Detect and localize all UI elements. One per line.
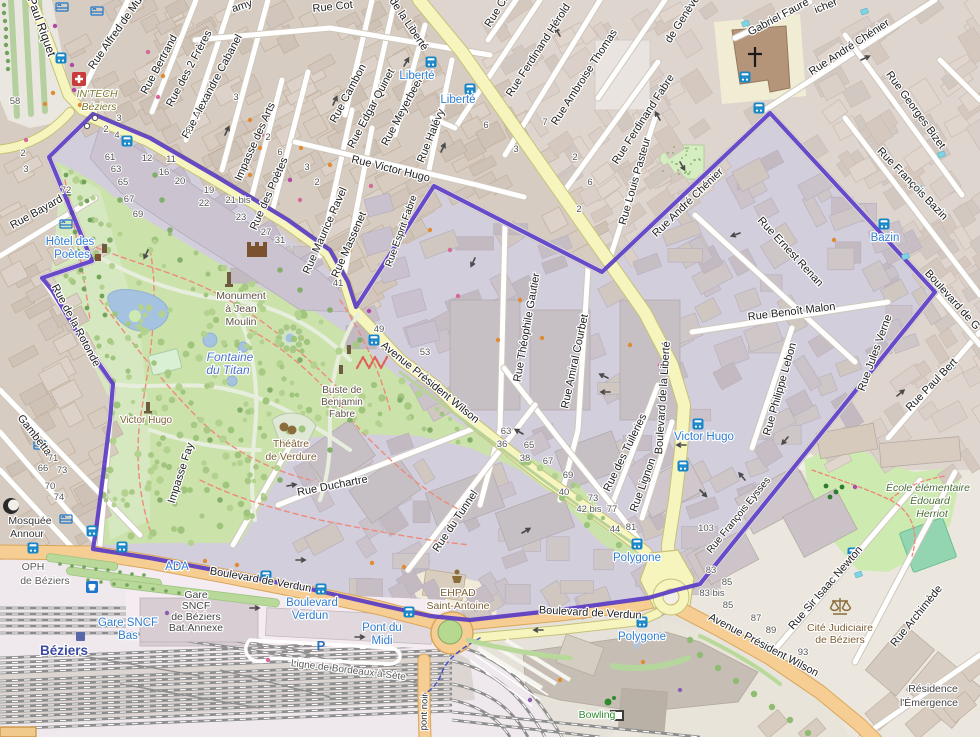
svg-text:EHPAD: EHPAD	[440, 587, 476, 599]
svg-text:2: 2	[572, 152, 577, 163]
svg-text:Victor Hugo: Victor Hugo	[674, 431, 734, 443]
svg-text:3: 3	[304, 162, 309, 173]
svg-text:Cité Judiciaire: Cité Judiciaire	[807, 622, 873, 634]
svg-text:de Verdure: de Verdure	[265, 451, 317, 463]
svg-text:Édouard: Édouard	[910, 494, 951, 507]
svg-text:Bazin: Bazin	[871, 232, 900, 244]
svg-text:Benjamin: Benjamin	[321, 397, 363, 408]
svg-text:4: 4	[114, 130, 119, 141]
svg-text:Résidence: Résidence	[908, 683, 958, 695]
svg-text:81: 81	[626, 522, 637, 533]
svg-text:l'Émergence: l'Émergence	[900, 696, 958, 709]
svg-text:Polygone: Polygone	[618, 631, 666, 643]
svg-text:73: 73	[588, 493, 599, 504]
svg-text:Liberté: Liberté	[440, 94, 475, 106]
svg-text:23: 23	[236, 212, 247, 223]
svg-text:Polygone: Polygone	[613, 552, 661, 564]
svg-text:Fabre: Fabre	[329, 409, 356, 420]
svg-text:Herriot: Herriot	[916, 508, 949, 520]
svg-text:Midi: Midi	[371, 635, 392, 647]
svg-text:36: 36	[497, 439, 508, 450]
svg-text:6: 6	[587, 177, 592, 188]
svg-text:Mosquée: Mosquée	[8, 515, 51, 527]
svg-text:Bat.Annexe: Bat.Annexe	[169, 622, 223, 634]
svg-text:22: 22	[199, 198, 210, 209]
svg-text:19: 19	[204, 185, 215, 196]
svg-text:63: 63	[501, 426, 512, 437]
svg-text:67: 67	[543, 456, 554, 467]
svg-text:Béziers: Béziers	[81, 101, 117, 113]
svg-text:89: 89	[766, 625, 777, 636]
svg-text:Verdun: Verdun	[292, 610, 328, 622]
svg-text:71: 71	[48, 453, 59, 464]
svg-text:du Titan: du Titan	[206, 363, 250, 377]
svg-text:65: 65	[118, 177, 129, 188]
svg-text:à Jean: à Jean	[225, 303, 257, 315]
svg-text:Théâtre: Théâtre	[273, 438, 309, 450]
svg-text:Poètes: Poètes	[54, 249, 90, 261]
svg-text:2: 2	[265, 132, 270, 143]
svg-text:77: 77	[607, 504, 618, 515]
svg-text:72: 72	[61, 185, 72, 196]
svg-text:6: 6	[185, 125, 190, 136]
svg-text:6: 6	[483, 120, 488, 131]
svg-text:Victor Hugo: Victor Hugo	[120, 415, 173, 426]
svg-text:Bas: Bas	[118, 630, 138, 642]
svg-text:69: 69	[133, 209, 144, 220]
svg-text:IN'TECH: IN'TECH	[76, 88, 118, 100]
svg-text:73: 73	[57, 465, 68, 476]
svg-text:2: 2	[20, 148, 25, 159]
svg-text:7: 7	[542, 117, 547, 128]
svg-text:42 bis: 42 bis	[576, 504, 602, 515]
svg-text:83: 83	[706, 565, 717, 576]
svg-text:Fontaine: Fontaine	[207, 350, 254, 364]
svg-text:63: 63	[111, 164, 122, 175]
svg-text:85: 85	[723, 600, 734, 611]
svg-text:12: 12	[142, 153, 153, 164]
svg-text:74: 74	[54, 492, 65, 503]
svg-text:49: 49	[374, 324, 385, 335]
svg-text:pont noir: pont noir	[418, 693, 430, 730]
svg-text:70: 70	[45, 481, 56, 492]
svg-text:Boulevard: Boulevard	[286, 597, 338, 609]
svg-text:66: 66	[38, 463, 49, 474]
svg-text:P: P	[317, 638, 326, 653]
svg-text:6: 6	[277, 147, 282, 158]
svg-text:École élémentaire: École élémentaire	[886, 481, 970, 494]
svg-text:103: 103	[698, 523, 714, 534]
svg-text:de Béziers: de Béziers	[20, 575, 70, 587]
svg-text:Moulin: Moulin	[226, 316, 257, 328]
svg-text:67: 67	[124, 194, 135, 205]
svg-text:Gare SNCF: Gare SNCF	[98, 617, 158, 629]
svg-text:Bowling: Bowling	[579, 709, 616, 721]
svg-text:27: 27	[261, 227, 272, 238]
svg-text:61: 61	[105, 152, 116, 163]
svg-text:Hôtel des: Hôtel des	[46, 236, 95, 248]
svg-text:de Béziers: de Béziers	[815, 634, 865, 646]
svg-text:21 bis: 21 bis	[225, 195, 251, 206]
svg-text:2: 2	[576, 204, 581, 215]
svg-text:Annour: Annour	[10, 528, 44, 540]
svg-text:2: 2	[314, 177, 319, 188]
svg-text:ADA: ADA	[165, 561, 189, 573]
svg-text:Béziers: Béziers	[40, 643, 88, 658]
svg-text:40: 40	[559, 487, 570, 498]
svg-text:69: 69	[563, 470, 574, 481]
svg-text:Buste de: Buste de	[322, 385, 362, 396]
svg-text:Liberté: Liberté	[399, 70, 434, 82]
svg-text:3: 3	[513, 144, 518, 155]
svg-text:20: 20	[175, 176, 186, 187]
svg-text:OPH: OPH	[22, 561, 45, 573]
svg-text:7: 7	[195, 111, 200, 122]
svg-text:85: 85	[722, 577, 733, 588]
svg-text:83 bis: 83 bis	[699, 588, 725, 599]
svg-text:3: 3	[116, 113, 121, 124]
svg-text:16: 16	[159, 167, 170, 178]
svg-text:2: 2	[103, 124, 108, 135]
svg-text:31: 31	[275, 235, 286, 246]
svg-text:Monument: Monument	[216, 290, 266, 302]
svg-text:Pont du: Pont du	[362, 622, 402, 634]
svg-text:93: 93	[798, 647, 809, 658]
svg-text:44: 44	[610, 524, 621, 535]
svg-text:3: 3	[233, 92, 238, 103]
svg-text:3: 3	[23, 164, 28, 175]
svg-text:41: 41	[333, 278, 344, 289]
svg-text:58: 58	[10, 96, 21, 107]
svg-text:11: 11	[166, 154, 176, 165]
svg-text:Saint-Antoine: Saint-Antoine	[426, 600, 489, 612]
svg-text:87: 87	[751, 613, 762, 624]
svg-text:65: 65	[524, 440, 535, 451]
svg-text:38: 38	[520, 453, 531, 464]
svg-text:53: 53	[420, 347, 431, 358]
